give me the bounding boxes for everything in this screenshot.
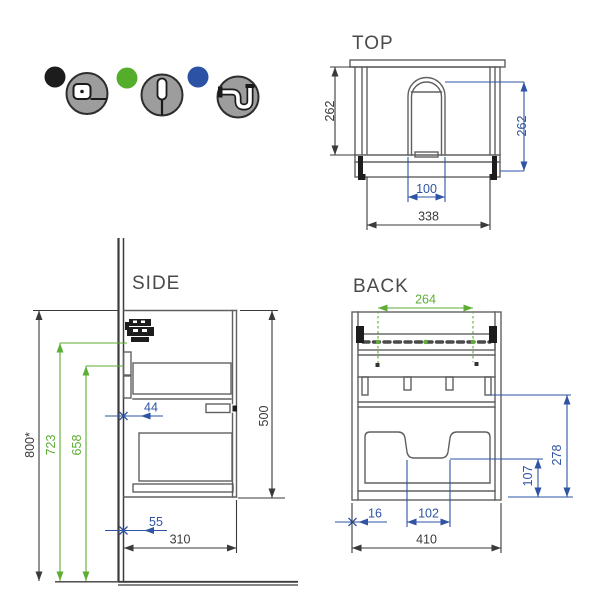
screw-points	[376, 340, 479, 367]
dim-label: 102	[418, 507, 439, 521]
dim-back-notch-width: 102	[407, 460, 450, 527]
dim-side-wall-to-drain: 55	[105, 515, 167, 535]
side-view-title: SIDE	[132, 273, 180, 294]
green-dot	[117, 68, 138, 89]
dim-back-bracket-spacing: 264	[378, 293, 473, 364]
dim-label: 410	[416, 533, 437, 547]
blue-dot	[188, 67, 209, 88]
dim-label: 278	[550, 445, 564, 466]
dim-top-depth-left: 262	[323, 67, 355, 155]
dim-side-height: 500	[238, 311, 285, 499]
dim-label: 264	[415, 293, 436, 307]
dim-label: 100	[416, 182, 437, 196]
dim-side-wall-to-drawer: 44	[105, 401, 163, 421]
legend-item-screwdriver	[117, 68, 183, 116]
dim-top-cutout-width: 100	[408, 157, 445, 202]
dim-label: 44	[144, 401, 158, 415]
top-cabinet-outline	[350, 60, 505, 177]
dim-back-edge-offset: 16	[335, 507, 387, 527]
front-gap-mark	[233, 406, 238, 412]
back-view: BACK	[320, 270, 610, 570]
dim-label: 723	[44, 435, 58, 456]
dim-label: 338	[418, 210, 439, 224]
legend-item-measure	[45, 67, 108, 115]
top-view-title: TOP	[352, 33, 394, 54]
dim-side-floor-to-plate: 658	[70, 366, 124, 581]
legend	[35, 55, 270, 130]
black-dot	[45, 67, 66, 88]
dim-label: 262	[515, 116, 529, 137]
top-view: TOP 262 262 100	[300, 25, 610, 240]
dim-label: 262	[323, 101, 337, 122]
dim-side-depth: 310	[124, 500, 237, 553]
dim-label: 310	[170, 533, 191, 547]
side-view: SIDE	[15, 235, 310, 600]
technical-drawing-page: TOP 262 262 100	[0, 0, 610, 600]
dim-label: 500	[257, 406, 271, 427]
dim-label: 107	[521, 466, 535, 487]
dim-label: 55	[149, 515, 163, 529]
dim-label: 16	[368, 507, 382, 521]
back-view-title: BACK	[353, 276, 409, 297]
wall-mount-bracket	[125, 319, 154, 342]
dim-top-depth-right: 262	[445, 82, 529, 171]
dim-label: 658	[70, 435, 84, 456]
dim-label: 800*	[23, 432, 37, 458]
legend-item-siphon	[188, 67, 259, 118]
